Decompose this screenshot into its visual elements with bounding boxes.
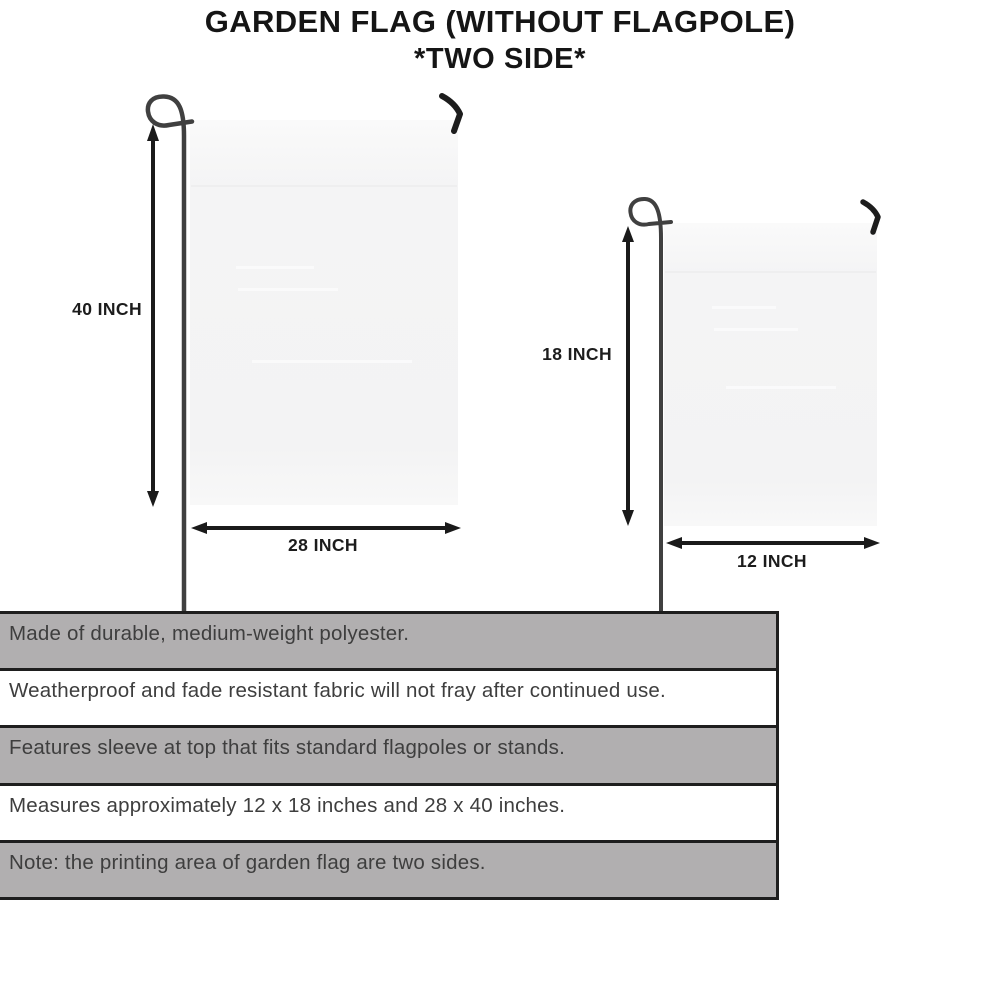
- feature-row-note: Note: the printing area of garden flag a…: [0, 843, 776, 900]
- feature-row-sleeve: Features sleeve at top that fits standar…: [0, 728, 776, 785]
- product-size-infographic: GARDEN FLAG (WITHOUT FLAGPOLE) *TWO SIDE…: [0, 0, 1000, 1000]
- small-flag-height-label: 18 INCH: [508, 344, 612, 365]
- feature-text: Measures approximately 12 x 18 inches an…: [9, 794, 565, 817]
- feature-text: Weatherproof and fade resistant fabric w…: [9, 679, 666, 702]
- flag-size-diagram: [0, 0, 1000, 612]
- large-flag-height-label: 40 INCH: [38, 299, 142, 320]
- large-width-arrow: [191, 522, 461, 534]
- small-height-arrow: [622, 226, 634, 526]
- small-width-arrow: [666, 537, 880, 549]
- feature-text: Features sleeve at top that fits standar…: [9, 736, 565, 759]
- large-flag-assembly: [147, 96, 461, 611]
- large-height-arrow: [147, 124, 159, 507]
- features-table: Made of durable, medium-weight polyester…: [0, 611, 779, 900]
- feature-text: Note: the printing area of garden flag a…: [9, 851, 486, 874]
- small-flag-assembly: [622, 199, 880, 611]
- feature-row-measurements: Measures approximately 12 x 18 inches an…: [0, 786, 776, 843]
- feature-row-weatherproof: Weatherproof and fade resistant fabric w…: [0, 671, 776, 728]
- large-flag: [190, 120, 458, 505]
- large-flag-width-label: 28 INCH: [223, 535, 423, 556]
- small-flag-width-label: 12 INCH: [672, 551, 872, 572]
- small-flag: [664, 223, 877, 526]
- feature-row-material: Made of durable, medium-weight polyester…: [0, 614, 776, 671]
- feature-text: Made of durable, medium-weight polyester…: [9, 622, 409, 645]
